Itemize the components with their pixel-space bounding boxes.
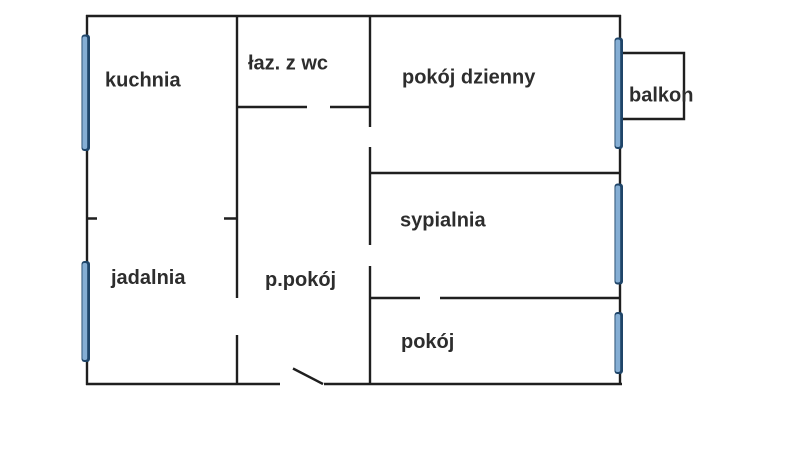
- svg-text:pokój: pokój: [401, 331, 454, 353]
- svg-text:sypialnia: sypialnia: [400, 210, 486, 232]
- svg-text:łaz. z wc: łaz. z wc: [248, 52, 328, 74]
- svg-text:jadalnia: jadalnia: [110, 267, 186, 289]
- svg-text:pokój dzienny: pokój dzienny: [402, 67, 536, 89]
- svg-text:balkon: balkon: [629, 85, 693, 107]
- svg-text:kuchnia: kuchnia: [105, 70, 181, 92]
- svg-text:p.pokój: p.pokój: [265, 269, 336, 291]
